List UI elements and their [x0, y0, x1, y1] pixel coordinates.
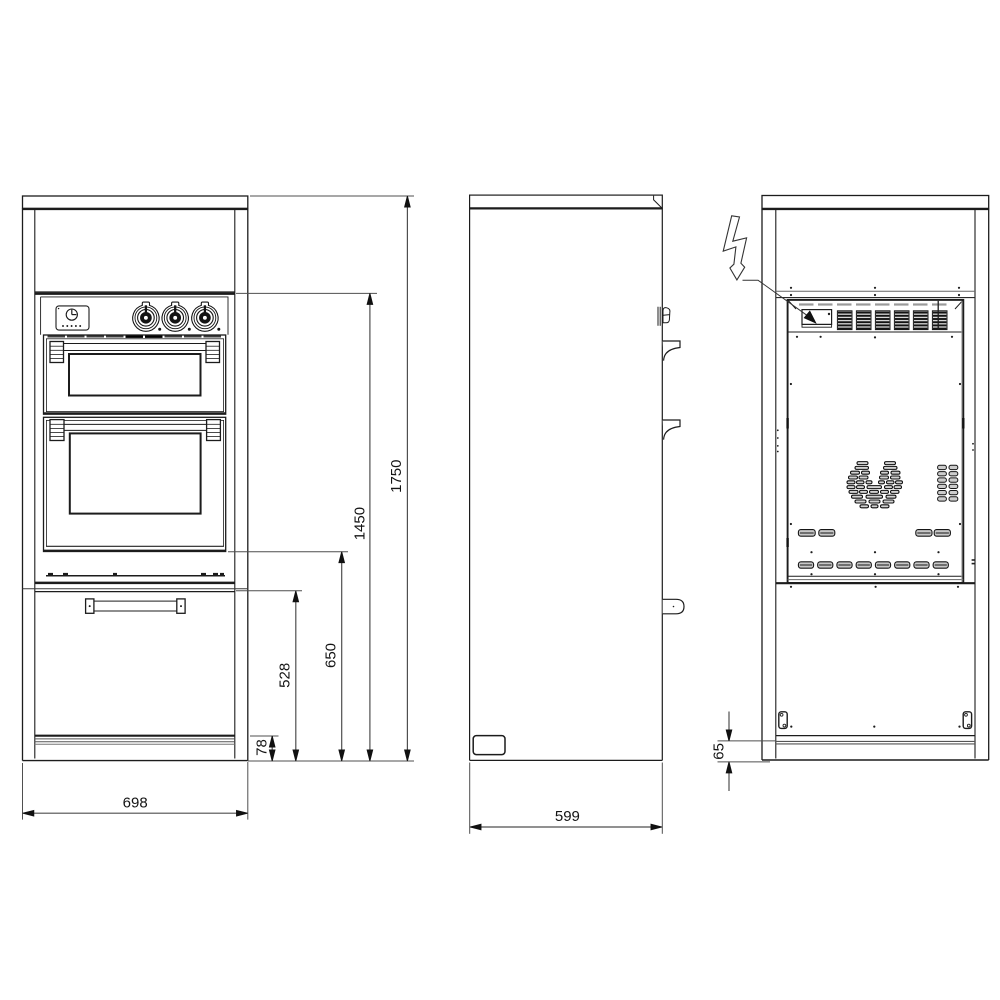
- svg-text:528: 528: [277, 663, 294, 688]
- svg-text:599: 599: [555, 808, 580, 825]
- svg-text:1750: 1750: [388, 460, 405, 493]
- svg-text:1450: 1450: [352, 507, 369, 540]
- svg-text:650: 650: [322, 643, 339, 668]
- svg-text:698: 698: [123, 795, 148, 812]
- svg-text:78: 78: [254, 739, 271, 756]
- svg-text:65: 65: [710, 743, 727, 760]
